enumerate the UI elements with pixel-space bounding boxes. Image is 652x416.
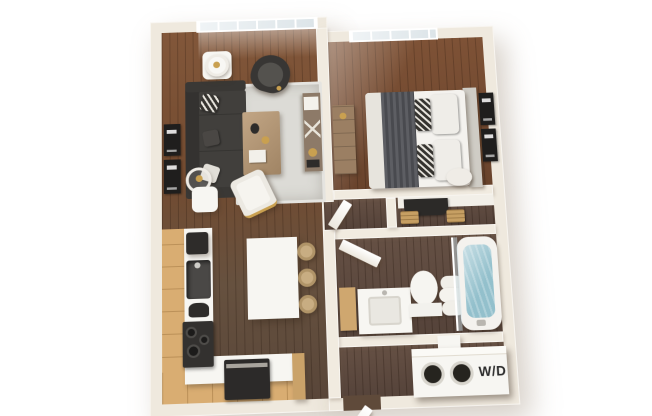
toilet-bowl [409,270,438,306]
bedroom-wall-art [478,93,495,126]
dresser [332,105,356,175]
washer-dryer-label: W/D [478,363,507,380]
faucet [194,262,200,268]
gallery-wall-art [164,124,181,156]
faucet [382,290,387,295]
chair-cushion [235,174,271,212]
vase [250,123,259,134]
cabinet-end-panel [292,353,306,400]
closet-divider-wall [386,198,397,228]
striped-runner [381,91,419,188]
gallery-wall-art-2 [164,159,181,194]
bathtub-water [463,244,496,318]
book-stack [249,150,266,163]
stove-burner [186,327,197,339]
accent-pillow [417,144,435,177]
stove [183,321,214,368]
coffee-maker [186,232,208,255]
console-x-leg [304,115,321,142]
dryer-door-icon [449,361,474,386]
accent-pillow [414,98,431,131]
console-gold-pot [308,148,317,157]
dresser-decor [339,113,346,120]
sofa-arm-top [185,80,246,92]
stove-burner [199,334,209,345]
chair-seat [255,60,286,90]
throw-pillow [202,129,220,147]
console-base [307,159,320,167]
oven-handle [226,363,267,369]
stove-burner [187,344,200,358]
console-tray [304,97,319,111]
bathtub [456,236,503,331]
storage-basket [400,211,419,224]
coffee-table [242,111,281,176]
storage-basket [446,209,465,222]
tub-faucet [476,320,486,327]
chair-leg-accent [276,85,282,91]
toilet-tank [409,303,442,317]
floorplan-stage: W/D [0,0,652,416]
kitchen-island [247,237,300,320]
hamper [339,287,357,331]
gold-bowl [261,136,269,144]
apartment-floorplan: W/D [150,11,521,416]
console-table [302,93,322,172]
bedroom-wall-art-2 [481,128,498,161]
sink-basin [368,296,402,326]
side-table-2 [192,186,218,212]
washer-door-icon [420,362,445,387]
bed-pillow [430,94,460,135]
utensil-crock [189,303,210,318]
vanity-sink [357,287,412,334]
kitchen-sink [186,260,211,299]
washer-dryer-unit: W/D [411,346,509,398]
oven [224,358,270,400]
